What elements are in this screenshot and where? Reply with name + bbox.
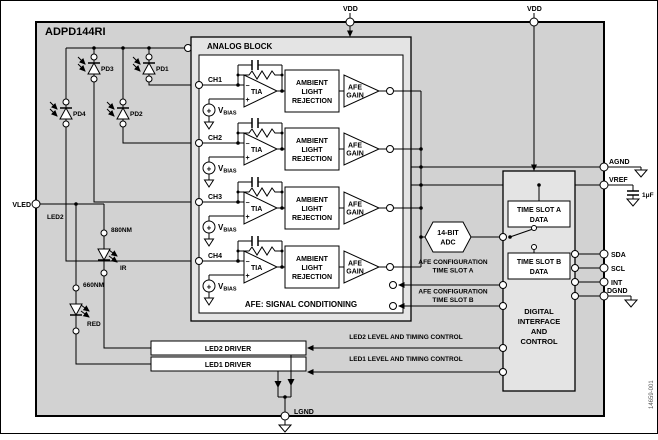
agnd-pin: AGND — [600, 159, 647, 177]
chip-title: ADPD144RI — [45, 26, 106, 38]
timeslot-b-box: TIME SLOT B DATA — [508, 253, 570, 279]
svg-text:AMBIENT: AMBIENT — [296, 138, 329, 145]
svg-text:+: + — [246, 214, 250, 221]
timeslot-a-box: TIME SLOT A DATA — [508, 201, 570, 227]
svg-text:TIME SLOT A: TIME SLOT A — [517, 207, 561, 214]
svg-text:SCL: SCL — [611, 266, 626, 273]
digital-label-4: CONTROL — [520, 337, 557, 346]
svg-text:AFE: AFE — [348, 261, 362, 268]
svg-text:+: + — [246, 97, 250, 104]
svg-text:REJECTION: REJECTION — [292, 98, 332, 105]
svg-text:TIA: TIA — [251, 89, 262, 96]
svg-text:CH4: CH4 — [208, 253, 222, 260]
svg-text:+: + — [207, 107, 212, 116]
svg-text:AMBIENT: AMBIENT — [296, 197, 329, 204]
svg-text:+: + — [207, 224, 212, 233]
svg-text:GAIN: GAIN — [346, 151, 364, 158]
svg-text:+: + — [207, 165, 212, 174]
led-wire-label: LED2 — [47, 214, 64, 221]
svg-text:VLED: VLED — [12, 202, 31, 209]
svg-text:TIME SLOT B: TIME SLOT B — [432, 297, 473, 304]
svg-text:VDD: VDD — [527, 6, 542, 13]
svg-text:LGND: LGND — [294, 409, 314, 416]
svg-text:AFE: AFE — [348, 85, 362, 92]
svg-text:TIA: TIA — [251, 206, 262, 213]
svg-text:AMBIENT: AMBIENT — [296, 80, 329, 87]
svg-text:INT: INT — [611, 280, 623, 287]
dgnd-ground-icon — [625, 300, 637, 307]
svg-text:14-BIT: 14-BIT — [437, 230, 459, 237]
svg-text:LED1 LEVEL AND TIMING CONTROL: LED1 LEVEL AND TIMING CONTROL — [349, 356, 462, 363]
digital-label-2: INTERFACE — [518, 317, 561, 326]
svg-text:+: + — [207, 283, 212, 292]
svg-text:VDD: VDD — [343, 6, 358, 13]
pd2-label: PD2 — [130, 111, 143, 118]
svg-text:−: − — [246, 83, 250, 90]
ir-led-wavelength: 880NM — [111, 227, 132, 234]
svg-text:−: − — [246, 259, 250, 266]
lgnd-pin: LGND — [279, 409, 314, 432]
lgnd-ground-icon — [279, 425, 291, 432]
svg-text:DGND: DGND — [607, 288, 628, 295]
svg-text:CH1: CH1 — [208, 77, 222, 84]
diagram-canvas: ADPD144RI VDD VDD PD3 — [1, 1, 658, 435]
svg-text:CH2: CH2 — [208, 135, 222, 142]
led2-driver-box: LED2 DRIVER — [151, 341, 306, 355]
red-led-wavelength: 660NM — [83, 282, 104, 289]
svg-text:GAIN: GAIN — [346, 93, 364, 100]
agnd-ground-icon — [635, 170, 647, 177]
svg-text:CH3: CH3 — [208, 194, 222, 201]
svg-text:LED2 DRIVER: LED2 DRIVER — [205, 346, 251, 353]
svg-text:REJECTION: REJECTION — [292, 215, 332, 222]
svg-text:GAIN: GAIN — [346, 269, 364, 276]
svg-text:LIGHT: LIGHT — [302, 89, 324, 96]
pd4-label: PD4 — [73, 111, 86, 118]
svg-text:REJECTION: REJECTION — [292, 156, 332, 163]
svg-text:TIA: TIA — [251, 265, 262, 272]
led1-driver-box: LED1 DRIVER — [151, 357, 306, 371]
svg-text:AFE CONFIGURATION: AFE CONFIGURATION — [418, 259, 488, 266]
pd1-label: PD1 — [156, 66, 169, 73]
figure-code: 14659-001 — [649, 380, 655, 409]
svg-text:GAIN: GAIN — [346, 210, 364, 217]
vref-pin: VREF 1μF — [600, 177, 654, 206]
svg-text:LED2 LEVEL AND TIMING CONTROL: LED2 LEVEL AND TIMING CONTROL — [349, 334, 462, 341]
svg-text:AFE: AFE — [348, 143, 362, 150]
block-diagram: ADPD144RI VDD VDD PD3 — [0, 0, 658, 434]
svg-text:REJECTION: REJECTION — [292, 274, 332, 281]
svg-text:AGND: AGND — [609, 159, 630, 166]
svg-text:AFE: AFE — [348, 202, 362, 209]
red-led-name: RED — [87, 321, 101, 328]
digital-label-3: AND — [531, 327, 548, 336]
svg-text:1μF: 1μF — [642, 192, 654, 199]
svg-text:DATA: DATA — [530, 217, 548, 224]
svg-text:TIA: TIA — [251, 147, 262, 154]
svg-text:ADC: ADC — [440, 240, 455, 247]
svg-text:+: + — [246, 273, 250, 280]
svg-text:LED1 DRIVER: LED1 DRIVER — [205, 362, 251, 369]
svg-text:SDA: SDA — [611, 252, 626, 259]
digital-label-1: DIGITAL — [524, 307, 554, 316]
svg-text:DATA: DATA — [530, 269, 548, 276]
svg-text:−: − — [246, 141, 250, 148]
svg-text:AFE CONFIGURATION: AFE CONFIGURATION — [418, 289, 488, 296]
svg-text:LIGHT: LIGHT — [302, 265, 324, 272]
svg-text:TIME SLOT A: TIME SLOT A — [433, 268, 474, 275]
svg-text:AMBIENT: AMBIENT — [296, 256, 329, 263]
svg-text:TIME SLOT B: TIME SLOT B — [517, 259, 561, 266]
svg-text:VREF: VREF — [609, 177, 628, 184]
pd3-label: PD3 — [101, 66, 114, 73]
svg-text:LIGHT: LIGHT — [302, 147, 324, 154]
svg-text:LIGHT: LIGHT — [302, 206, 324, 213]
vref-ground-icon — [627, 199, 639, 206]
svg-text:−: − — [246, 200, 250, 207]
svg-text:+: + — [246, 155, 250, 162]
afe-footer: AFE: SIGNAL CONDITIONING — [245, 300, 357, 309]
ir-led-name: IR — [120, 265, 127, 272]
analog-block-title: ANALOG BLOCK — [207, 42, 273, 51]
